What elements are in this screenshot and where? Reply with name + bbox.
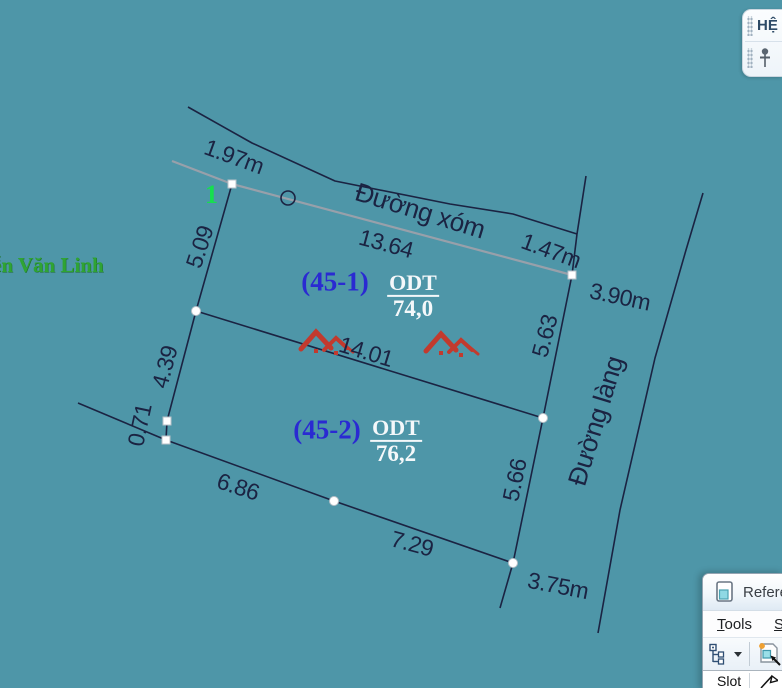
document-icon (713, 580, 737, 604)
vertex-marker[interactable] (163, 417, 171, 425)
cad-viewport[interactable]: 1.97m13.641.47m3.90m5.095.634.390.7114.0… (0, 0, 782, 688)
drag-grip[interactable] (747, 16, 753, 36)
toolbar-separator (749, 642, 750, 666)
vertex-marker[interactable] (330, 497, 339, 506)
dialog-toolbar (703, 637, 782, 671)
road-top-edge[interactable] (188, 107, 577, 234)
road-east-edge[interactable] (598, 193, 703, 633)
vertex-marker[interactable] (192, 307, 201, 316)
dropdown-caret-icon[interactable] (733, 650, 743, 658)
list-header-row: Slot (703, 671, 782, 688)
road-top-stub[interactable] (577, 176, 586, 234)
vertex-marker[interactable] (162, 436, 170, 444)
north-boundary[interactable] (172, 161, 572, 275)
column-header-slot[interactable]: Slot (717, 673, 741, 688)
menu-settings[interactable]: Se (774, 616, 782, 633)
vertex-marker[interactable] (568, 271, 576, 279)
hierarchy-view-icon[interactable] (708, 642, 730, 666)
watermark-logo (426, 334, 478, 357)
dialog-title: Referen (743, 584, 782, 601)
highlight-flag-icon[interactable] (758, 673, 778, 688)
vertex-marker[interactable] (509, 559, 518, 568)
south-boundary[interactable] (166, 440, 513, 608)
vertex-marker[interactable] (539, 414, 548, 423)
division-line[interactable] (196, 311, 543, 418)
dialog-titlebar[interactable]: Referen (703, 574, 782, 611)
system-toolbar-panel: HỆ T (742, 9, 782, 77)
vertex-marker[interactable] (228, 180, 236, 188)
frontage-segment[interactable] (572, 234, 577, 275)
column-separator (749, 673, 750, 688)
drag-grip[interactable] (747, 48, 753, 68)
references-dialog: Referen Tools Se (702, 573, 782, 688)
system-panel-title: HỆ T (757, 17, 782, 34)
menu-tools[interactable]: Tools (717, 616, 752, 633)
neighbor-line[interactable] (78, 403, 166, 440)
cadastral-drawing (0, 0, 782, 688)
pushpin-icon[interactable] (757, 47, 773, 69)
dialog-menubar: Tools Se (703, 611, 782, 637)
attach-reference-icon[interactable] (756, 641, 782, 667)
